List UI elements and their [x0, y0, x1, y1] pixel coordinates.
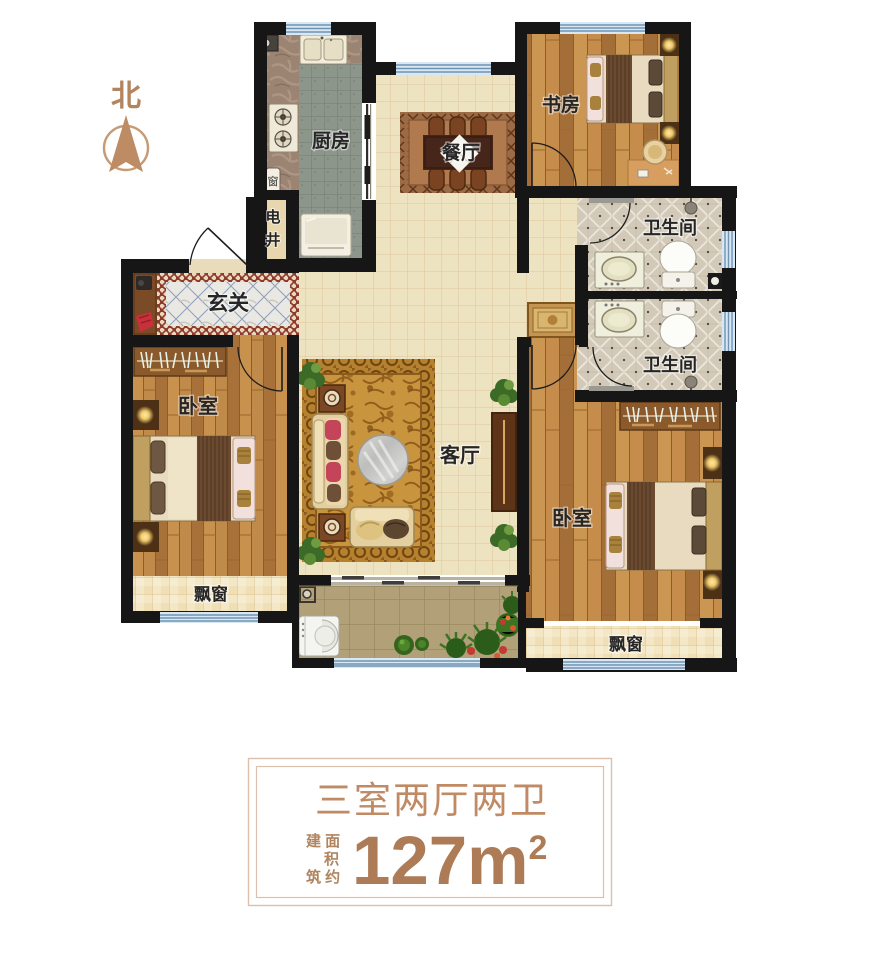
svg-text:卧室: 卧室 [178, 394, 218, 418]
svg-text:客厅: 客厅 [439, 443, 480, 467]
svg-text:井: 井 [265, 231, 280, 249]
svg-text:窗: 窗 [268, 174, 279, 188]
svg-text:建 面: 建 面 [306, 832, 340, 850]
svg-text:卫生间: 卫生间 [643, 217, 697, 238]
svg-text:书房: 书房 [542, 93, 580, 116]
svg-text:飘窗: 飘窗 [194, 584, 228, 604]
svg-text:三室两厅两卫: 三室两厅两卫 [315, 780, 549, 821]
svg-text:电: 电 [265, 208, 280, 226]
svg-text:厨房: 厨房 [312, 129, 350, 152]
svg-text:卧室: 卧室 [552, 506, 592, 530]
svg-text:积: 积 [324, 850, 339, 868]
svg-text:卫生间: 卫生间 [643, 354, 697, 375]
svg-text:餐厅: 餐厅 [442, 141, 480, 164]
svg-text:玄关: 玄关 [207, 291, 249, 315]
svg-text:127m2: 127m2 [352, 822, 547, 899]
svg-text:北: 北 [111, 80, 141, 113]
svg-text:筑 约: 筑 约 [305, 868, 340, 886]
svg-text:飘窗: 飘窗 [609, 634, 643, 654]
